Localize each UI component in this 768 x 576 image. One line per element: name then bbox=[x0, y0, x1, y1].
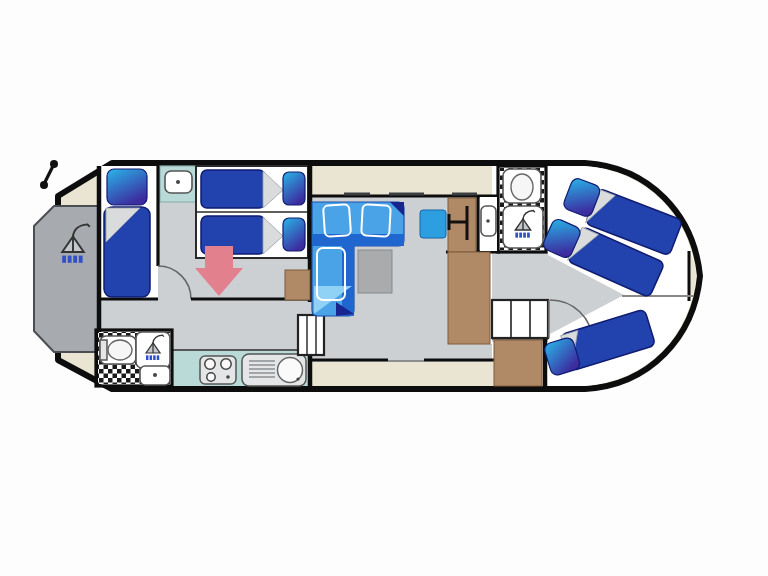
washbasin-icon bbox=[481, 206, 496, 236]
sink-icon bbox=[242, 354, 306, 386]
forward-cabinet bbox=[494, 340, 542, 386]
aft-sun-deck bbox=[34, 206, 100, 352]
helm-seat bbox=[420, 210, 446, 238]
top-side-deck bbox=[312, 166, 492, 196]
galley bbox=[200, 354, 306, 386]
shower-icon bbox=[503, 206, 543, 248]
aft-bathroom bbox=[96, 330, 172, 386]
bottom-side-deck bbox=[312, 362, 494, 386]
shower-icon bbox=[136, 332, 170, 368]
toilet-icon bbox=[100, 336, 136, 364]
saloon-table bbox=[358, 250, 392, 293]
floorplan-canvas bbox=[0, 0, 768, 576]
stove-icon bbox=[200, 356, 236, 384]
washbasin-icon bbox=[140, 366, 170, 385]
mid-cabin-wardrobe bbox=[285, 270, 310, 300]
console-cabinet bbox=[448, 252, 490, 344]
aft-port-cabin-bed bbox=[104, 169, 150, 297]
cabin-washbasin-icon bbox=[165, 171, 192, 193]
helm-console bbox=[448, 198, 476, 252]
antenna-icon bbox=[40, 160, 58, 189]
companionway-steps bbox=[298, 315, 324, 355]
houseboat-floorplan bbox=[0, 0, 768, 576]
bow-steps bbox=[492, 300, 548, 338]
toilet-icon bbox=[503, 169, 541, 203]
mid-cabin-bed-1 bbox=[201, 170, 305, 208]
